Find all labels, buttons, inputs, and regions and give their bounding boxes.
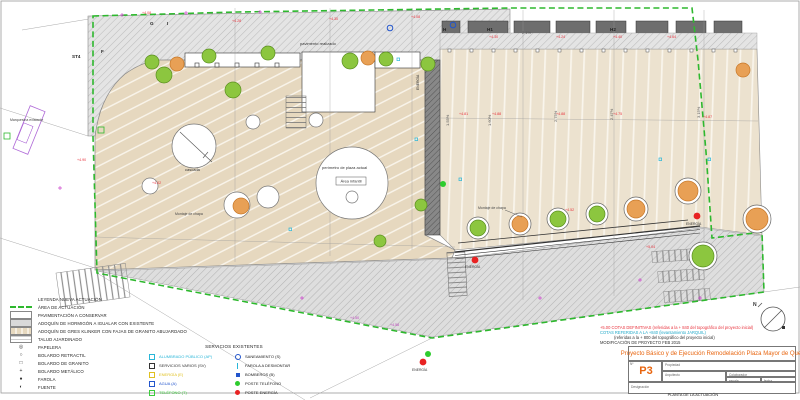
elevation: +4.28 [232, 19, 241, 23]
legend-label: FUENTE [38, 385, 56, 390]
elevation: +4.88 [556, 112, 565, 116]
marquesina-shape [13, 106, 45, 155]
service-label: FAROLA A DESMONTAR [245, 363, 290, 368]
elevation: +4.30 [489, 35, 498, 39]
legend-label: BOLARDO RETRACTIL [38, 353, 86, 358]
farola-desmontar-marker [237, 363, 238, 369]
servicios-existentes-legend: SERVICIOS EXISTENTES ALUMBRADO PÚBLICO (… [148, 344, 320, 397]
legend-item: TALUD AJARDINADO [10, 335, 225, 343]
designacion-value: PLANTA DE LA ACTUACIÓN [668, 392, 719, 397]
legend-label: BOLARDO METÁLICO [38, 369, 84, 374]
label-energia-vertical: ENERGÍA [416, 74, 420, 90]
label-area-infantil: Área infantil [340, 179, 361, 184]
label-marquesina: Marquesina existente [10, 118, 43, 122]
service-item: AGUA (A) [148, 379, 234, 388]
elevation: +4.40 [613, 35, 622, 39]
talud-swatch [10, 335, 32, 343]
elevation: +4.88 [492, 112, 501, 116]
legend-label: ADOQUÍN DE HORMIGÓN A IGUALAR CON EXISTE… [38, 321, 154, 326]
legend-label: ADOQUÍN DE GRES KLINKER CON FAJAS DE GRA… [38, 329, 187, 334]
bolardo-granito-symbol: □ [19, 360, 22, 366]
elevation: +4.02 [152, 181, 161, 185]
propiedad-cell: Propiedad AYUNTAMIENTO DE QUER [662, 361, 796, 371]
service-item: BOMBEROS (B) [234, 370, 320, 379]
elevation: +4.64 [667, 35, 676, 39]
label-cascada: cascada [185, 167, 201, 172]
buildings-hatch-strip [440, 33, 757, 49]
point-letter: H1 [487, 27, 493, 32]
legend-title-row: LEYENDA NUEVA ACTUACIÓN [10, 295, 225, 303]
service-item: FAROLA A DESMONTAR [234, 361, 320, 370]
telefono-marker [149, 390, 155, 396]
service-item: SANEAMIENTO (S) [234, 352, 320, 361]
elevation: +4.52 [565, 208, 574, 212]
service-label: ENERGÍA (E) [159, 372, 183, 377]
elevation: +4.81 [459, 112, 468, 116]
service-label: AGUA (A) [159, 381, 177, 386]
north-label: N [753, 302, 757, 308]
area-actuacion-swatch [10, 306, 32, 308]
label-pavimento: pavimento realizado [300, 41, 337, 46]
services-left-column: ALUMBRADO PÚBLICO (AP) SERVICIOS VARIOS … [148, 352, 234, 397]
drawing-sheet: ST4 Marquesina existente pavimento reali… [0, 0, 800, 400]
legend-label: ÁREA DE ACTUACIÓN [38, 305, 85, 310]
service-item: POSTE TELÉFONO [234, 379, 320, 388]
elevation: +4.08 [411, 15, 420, 19]
arquitecto-label: Arquitecto [665, 373, 680, 377]
point-letter: H2 [610, 27, 616, 32]
project-title: Proyecto Básico y de Ejecución Remodelac… [621, 351, 800, 357]
point-letter: G [150, 21, 154, 26]
legend-label: TALUD AJARDINADO [38, 337, 82, 342]
adoquin-hormigon-swatch [10, 319, 32, 327]
papelera-symbol: ◎ [19, 344, 23, 350]
service-label: SERVICIOS VARIOS (SV) [159, 363, 206, 368]
adoquin-gres-swatch [10, 327, 32, 335]
legend-label: BOLARDO DE GRANITO [38, 361, 89, 366]
point-letter: F [101, 49, 104, 54]
poste-telefono-marker [235, 381, 240, 386]
elevation: +4.58 [390, 323, 399, 327]
poste-energia-marker [235, 390, 240, 395]
label-montaje-1: Montaje de chapa [478, 206, 506, 210]
legend-item: ADOQUÍN DE HORMIGÓN A IGUALAR CON EXISTE… [10, 319, 225, 327]
services-right-column: SANEAMIENTO (S) FAROLA A DESMONTAR BOMBE… [234, 352, 320, 397]
bomberos-marker [236, 373, 240, 377]
service-label: POSTE ENERGÍA [245, 390, 278, 395]
service-item: ENERGÍA (E) [148, 370, 234, 379]
service-item: ALUMBRADO PÚBLICO (AP) [148, 352, 234, 361]
elevation: +4.24 [556, 35, 565, 39]
sheet-number: P3 [629, 365, 663, 377]
label-energia-1: ENERGÍA [465, 265, 481, 269]
service-label: TELÉFONO (T) [159, 390, 187, 395]
note-modificacion: MODIFICACIÓN DE PROYECTO FEB 2015 [600, 340, 798, 345]
legend-label: FAROLA [38, 377, 56, 382]
elevation: +4.90 [77, 158, 86, 162]
services-title: SERVICIOS EXISTENTES [148, 344, 320, 349]
fuente-symbol: ◐ [19, 384, 22, 390]
bolardo-metalico-symbol: + [20, 368, 23, 374]
legend-item: PAVIMENTACIÓN A CONSERVAR [10, 311, 225, 319]
elevation: +4.30 [329, 17, 338, 21]
service-label: BOMBEROS (B) [245, 372, 275, 377]
arquitecto-cell: Arquitecto ANGEL TOLEDO RUIZ [662, 371, 726, 382]
label-montaje-2: Montaje de chapa [175, 212, 203, 216]
agua-marker [149, 381, 155, 387]
service-label: SANEAMIENTO (S) [245, 354, 281, 359]
saneamiento-marker [235, 354, 241, 360]
project-title-cell: Proyecto Básico y de Ejecución Remodelac… [628, 346, 796, 361]
label-perimetro: perímetro de plaza actual [322, 165, 367, 170]
propiedad-label: Propiedad [665, 363, 680, 367]
label-energia-3: ENERGÍA [412, 368, 428, 372]
pavimentacion-swatch [10, 311, 32, 319]
legend-item: ÁREA DE ACTUACIÓN [10, 303, 225, 311]
elevation: +4.08 [142, 11, 151, 15]
servicios-varios-marker [149, 363, 155, 369]
energia-marker [149, 372, 155, 378]
point-letter: I [167, 21, 168, 26]
legend-item: ADOQUÍN DE GRES KLINKER CON FAJAS DE GRA… [10, 327, 225, 335]
elevation: +4.50 [350, 316, 359, 320]
service-label: ALUMBRADO PÚBLICO (AP) [159, 354, 212, 359]
designacion-label: Designación [631, 385, 649, 389]
legend-title: LEYENDA NUEVA ACTUACIÓN [38, 297, 102, 302]
sheet-number-cell: Nº P3 [628, 361, 662, 382]
elevation: +5.04 [646, 245, 655, 249]
designacion-cell: Designación PLANTA DE LA ACTUACIÓN [628, 382, 796, 394]
alumbrado-marker [149, 354, 155, 360]
service-item: SERVICIOS VARIOS (SV) [148, 361, 234, 370]
slope-label: 2.1% [522, 30, 532, 35]
wall-strip [425, 60, 440, 235]
label-energia-2: ENERGÍA [686, 222, 702, 226]
slope-label: 3.15% [696, 106, 701, 118]
service-item: POSTE ENERGÍA [234, 388, 320, 397]
elevation: +4.75 [613, 112, 622, 116]
label-st4: ST4 [72, 54, 81, 59]
slope-label: 1.55% [445, 114, 450, 126]
farola-symbol: ● [19, 376, 22, 382]
legend-label: PAVIMENTACIÓN A CONSERVAR [38, 313, 107, 318]
elevation: +4.87 [703, 115, 712, 119]
cotas-notes: +5.00 COTAS DEFINITIVAS (referidas a la … [600, 325, 798, 345]
bolardo-retractil-symbol: ○ [19, 352, 22, 358]
legend-label: PAPELERA [38, 345, 61, 350]
service-label: POSTE TELÉFONO [245, 381, 281, 386]
service-item: TELÉFONO (T) [148, 388, 234, 397]
